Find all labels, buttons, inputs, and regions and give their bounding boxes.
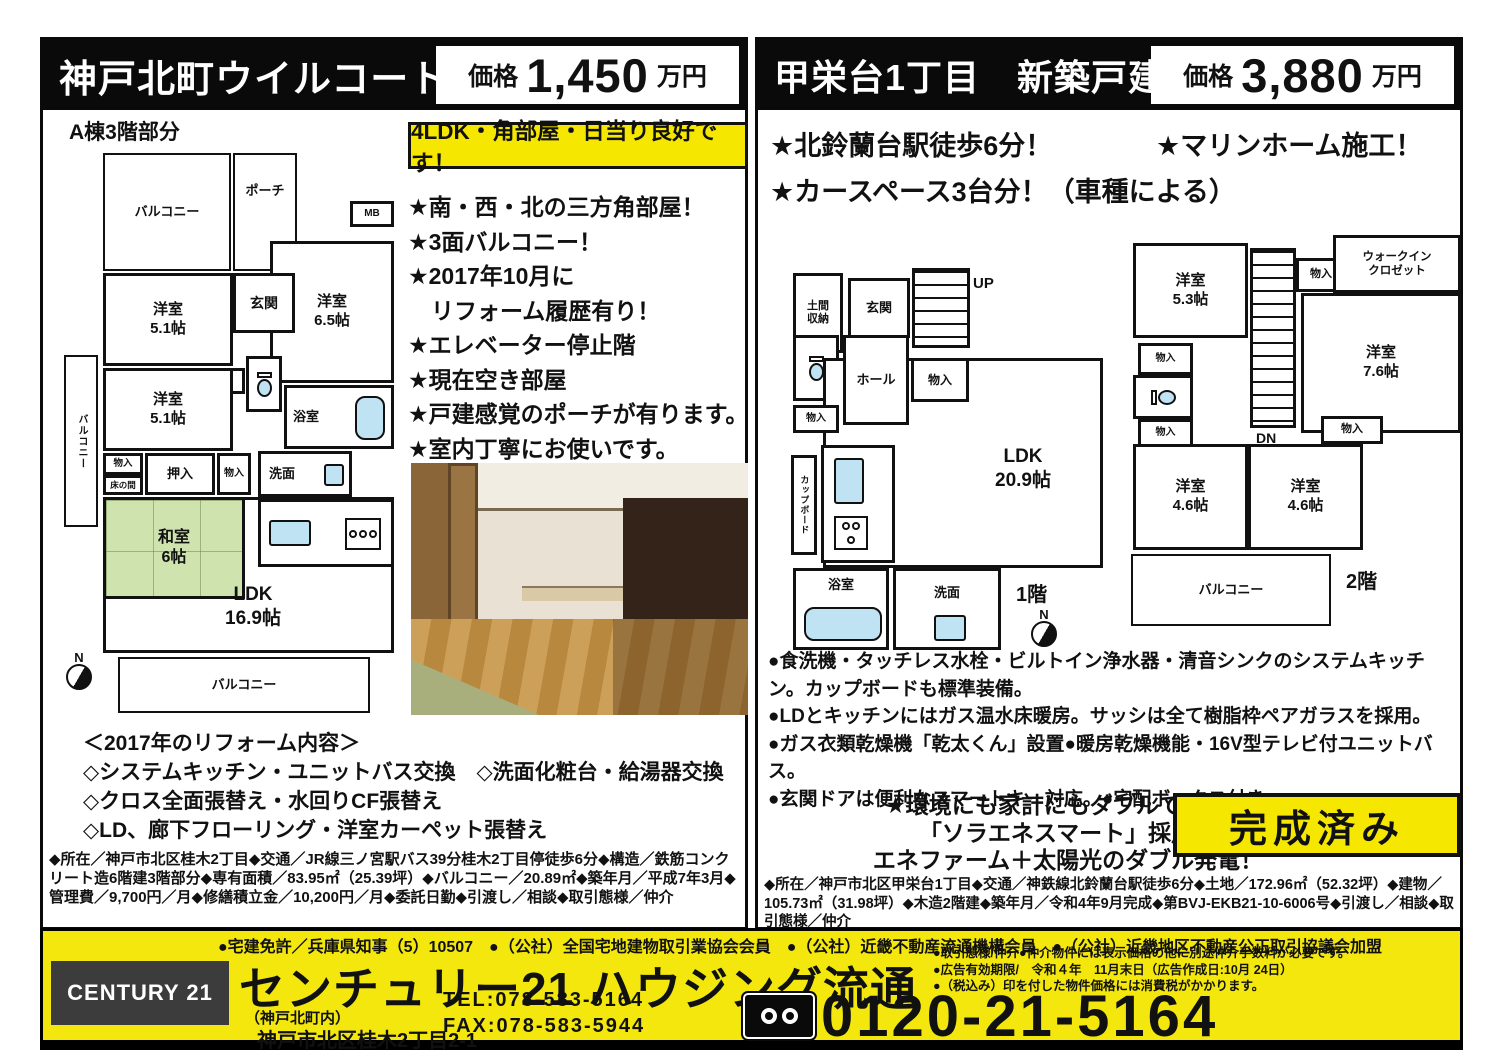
stairs-up-label: UP <box>973 275 994 292</box>
feature-line: ★3面バルコニー！ <box>408 225 748 260</box>
feature-line: ★南・西・北の三方角部屋！ <box>408 190 748 225</box>
room-label: 洗面 <box>934 585 960 601</box>
left-price-value: 1,450 <box>526 48 649 103</box>
left-price-box: 価格 1,450 万円 <box>436 46 739 104</box>
reform-line: ◇クロス全面張替え・水回りCF張替え <box>83 788 724 817</box>
room-label: 和室 6帖 <box>158 528 190 568</box>
room-label: 洋室 6.5帖 <box>314 293 350 331</box>
right-price-box: 価格 3,880 万円 <box>1151 46 1454 104</box>
tel-number: TEL:078-583-5164 <box>443 989 644 1012</box>
reform-line: ◇LD、廊下フローリング・洋室カーペット張替え <box>83 817 724 846</box>
left-floor-plan: バルコニー ポーチ MB 洋室 6.5帖 洋室 5.1帖 玄関 物入 洋室 <box>58 143 403 721</box>
compass-icon: N <box>1031 608 1057 647</box>
feature-line: ●LDとキッチンにはガス温水床暖房。サッシは全て樹脂枠ペアガラスを採用。 <box>768 703 1460 731</box>
footer-note-line: ●広告有効期限/ 令和４年 11月末日（広告作成日:10月 24日） <box>933 962 1350 979</box>
feature-line: ★室内丁寧にお使いです。 <box>408 432 748 467</box>
room-senmen: 洗面 <box>258 451 352 497</box>
room-closet1-1f: 物入 <box>911 358 969 402</box>
right-bullet-carspace: ★カースペース3台分！（車種による） <box>770 170 1236 209</box>
room-closet-c: 物入 <box>217 453 251 495</box>
room-genkan-1f: 玄関 <box>848 278 910 338</box>
feature-line: ★2017年10月に <box>408 259 748 294</box>
room-label: 玄関 <box>866 300 892 316</box>
right-price-unit: 万円 <box>1372 57 1422 93</box>
room-bath-1f: 浴室 <box>793 568 889 650</box>
feature-line: リフォーム履歴有り！ <box>408 294 748 329</box>
feature-line: ★エレベーター停止階 <box>408 328 748 363</box>
kitchen-sink-icon <box>834 458 864 504</box>
room-label: 洋室 5.1帖 <box>150 391 186 429</box>
footer-notes: ●取引態様/仲介●仲介物件には表示価格の他に別途仲介手数料が必要です。 ●広告有… <box>933 945 1350 995</box>
room-label: 玄関 <box>250 295 278 312</box>
room-label: 洋室 4.6帖 <box>1288 478 1324 516</box>
right-bullet-station: ★北鈴蘭台駅徒歩6分！ <box>770 124 1052 163</box>
interior-photo <box>411 463 748 715</box>
room-closet-l2-2f: 物入 <box>1138 419 1193 447</box>
room-bath: 浴室 <box>284 385 394 449</box>
room-closet2-1f: 物入 <box>793 405 839 433</box>
room-genkan: 玄関 <box>233 273 295 333</box>
footer-note-line: ●（税込み）印を付した物件価格には消費税がかかります。 <box>933 978 1350 995</box>
reform-title: ＜2017年のリフォーム内容＞ <box>83 730 724 759</box>
stove-icon <box>345 518 381 550</box>
room-label: バルコニー <box>75 414 87 469</box>
footer-bar: ●宅建免許／兵庫県知事（5）10507 ●（公社）全国宅地建物取引業協会会員 ●… <box>40 928 1463 1050</box>
room-oshiire: 押入 <box>145 453 215 495</box>
room-mb: MB <box>350 201 394 227</box>
sink-icon <box>324 464 344 486</box>
room-balcony-top: バルコニー <box>103 153 231 271</box>
room-closet-r-2f: 物入 <box>1321 416 1383 444</box>
stairs-down <box>1250 248 1296 428</box>
room-label: 洗面 <box>269 466 295 482</box>
right-header-bar: 甲栄台1丁目 新築戸建 価格 3,880 万円 <box>758 40 1460 110</box>
room-closet-b: 物入 <box>103 453 143 475</box>
room-label: カップボード <box>799 475 810 535</box>
floor-plan-1f: 土間収納 玄関 UP ホール 物入 物入 カップボード <box>773 230 1123 675</box>
room-label: 物入 <box>1156 427 1176 439</box>
room-yoshitsu-7-6: 洋室 7.6帖 <box>1301 293 1461 433</box>
right-price-label: 価格 <box>1183 57 1233 93</box>
bathtub-icon <box>804 607 882 641</box>
room-yoshitsu-5-1-upper: 洋室 5.1帖 <box>103 273 233 366</box>
room-kitchen <box>258 499 394 567</box>
toilet-icon <box>1151 390 1176 405</box>
feature-line: ★現在空き部屋 <box>408 363 748 398</box>
kitchen-sink-icon <box>269 520 311 546</box>
room-toilet <box>246 356 282 412</box>
left-plan-caption: A棟3階部分 <box>69 116 180 146</box>
room-yoshitsu-4-6-left: 洋室 4.6帖 <box>1133 444 1248 550</box>
room-label: 浴室 <box>828 577 854 593</box>
stairs-up <box>912 268 970 348</box>
left-price-label: 価格 <box>468 57 518 93</box>
left-feature-list: ★南・西・北の三方角部屋！ ★3面バルコニー！ ★2017年10月に リフォーム… <box>408 190 748 466</box>
room-yoshitsu-4-6-right: 洋室 4.6帖 <box>1248 444 1363 550</box>
floor-plan-2f: 洋室 5.3帖 物入 ウォークイン クロゼット 洋室 7.6帖 DN 物入 <box>1128 230 1466 675</box>
left-price-unit: 万円 <box>657 57 707 93</box>
room-label: ホール <box>856 372 895 388</box>
room-label: ウォークイン クロゼット <box>1363 250 1432 279</box>
right-feature-list: ●食洗機・タッチレス水栓・ビルトイン浄水器・清音シンクのシステムキッチン。カップ… <box>768 648 1460 813</box>
room-label: バルコニー <box>212 677 277 693</box>
bathtub-icon <box>355 396 385 440</box>
stove-icon <box>834 516 868 550</box>
left-header-bar: 神戸北町ウイルコート 価格 1,450 万円 <box>43 40 745 110</box>
left-property-details: ◆所在／神戸市北区桂木2丁目◆交通／JR線三ノ宮駅バス39分桂木2丁目停徒歩6分… <box>49 850 743 908</box>
room-balcony-left: バルコニー <box>64 355 98 527</box>
toilet-icon <box>257 372 272 397</box>
feature-line: ★戸建感覚のポーチが有ります。 <box>408 397 748 432</box>
room-label: 物入 <box>928 373 952 387</box>
photo-kitchen-cabinet <box>623 498 748 629</box>
completed-badge: 完成済み <box>1173 793 1461 857</box>
left-property-title: 神戸北町ウイルコート <box>59 40 448 110</box>
room-label: MB <box>364 208 380 220</box>
room-label: 洋室 5.1帖 <box>150 301 186 339</box>
photo-counter <box>522 586 623 601</box>
room-label: 洋室 7.6帖 <box>1363 344 1399 382</box>
footer-note-line: ●取引態様/仲介●仲介物件には表示価格の他に別途仲介手数料が必要です。 <box>933 945 1350 962</box>
room-label: 押入 <box>167 466 193 482</box>
room-wic: ウォークイン クロゼット <box>1333 235 1461 293</box>
room-label: 浴室 <box>293 409 319 425</box>
sink-icon <box>934 615 966 641</box>
room-balcony-bottom: バルコニー <box>118 657 370 713</box>
room-label: 土間収納 <box>805 300 831 326</box>
room-balcony-2f: バルコニー <box>1131 554 1331 626</box>
room-tokonoma: 床の間 <box>103 475 143 495</box>
room-label: 物入 <box>1156 353 1176 365</box>
room-cupboard: カップボード <box>791 455 817 555</box>
left-property-panel: 神戸北町ウイルコート 価格 1,450 万円 A棟3階部分 バルコニー ポーチ … <box>40 37 748 930</box>
room-label: 物入 <box>113 458 132 469</box>
freedial-phone-icon <box>743 993 815 1039</box>
room-label: 物入 <box>1341 423 1363 436</box>
room-label: 洋室 4.6帖 <box>1173 478 1209 516</box>
room-label: バルコニー <box>1199 582 1264 598</box>
room-hall: ホール <box>843 335 909 425</box>
flyer-page: 神戸北町ウイルコート 価格 1,450 万円 A棟3階部分 バルコニー ポーチ … <box>0 0 1500 1061</box>
floor-1f-label: 1階 <box>1016 578 1047 607</box>
floor-2f-label: 2階 <box>1346 565 1377 594</box>
room-senmen-1f: 洗面 <box>893 568 1001 650</box>
room-label: 物入 <box>806 413 826 425</box>
right-property-panel: 甲栄台1丁目 新築戸建 価格 3,880 万円 ★北鈴蘭台駅徒歩6分！ ★マリン… <box>755 37 1463 930</box>
right-property-title: 甲栄台1丁目 新築戸建 <box>774 40 1165 110</box>
ldk-1f-label: LDK 20.9帖 <box>963 445 1083 493</box>
room-toilet-2f <box>1133 375 1193 419</box>
photo-floor-shadow <box>613 619 748 715</box>
left-highlight-banner: 4LDK・角部屋・日当り良好です！ <box>408 122 748 169</box>
room-label: 床の間 <box>110 480 136 490</box>
room-closet-l1-2f: 物入 <box>1138 343 1193 375</box>
room-yoshitsu-5-3: 洋室 5.3帖 <box>1133 243 1248 338</box>
feature-line: ●食洗機・タッチレス水栓・ビルトイン浄水器・清音シンクのシステムキッチン。カップ… <box>768 648 1460 703</box>
right-bullet-builder: ★マリンホーム施工！ <box>1156 124 1422 163</box>
reform-line: ◇システムキッチン・ユニットバス交換 ◇洗面化粧台・給湯器交換 <box>83 759 724 788</box>
right-price-value: 3,880 <box>1241 48 1364 103</box>
room-label: 物入 <box>224 468 244 480</box>
room-label: 物入 <box>1310 268 1332 281</box>
feature-line: ●ガス衣類乾燥機「乾太くん」設置●暖房乾燥機能・16V型テレビ付ユニットバス。 <box>768 731 1460 786</box>
toilet-icon <box>809 356 824 381</box>
right-property-details: ◆所在／神戸市北区甲栄台1丁目◆交通／神鉄線北鈴蘭台駅徒歩6分◆土地／172.9… <box>764 876 1458 932</box>
fax-number: FAX:078-583-5944 <box>443 1015 645 1038</box>
century21-logo: CENTURY 21 <box>51 961 229 1025</box>
room-label: ポーチ <box>245 183 284 199</box>
room-kitchen-1f <box>821 445 895 563</box>
room-label: バルコニー <box>135 204 200 220</box>
reform-section: ＜2017年のリフォーム内容＞ ◇システムキッチン・ユニットバス交換 ◇洗面化粧… <box>83 730 724 846</box>
ldk-label: LDK 16.9帖 <box>178 583 328 631</box>
room-label: 洋室 5.3帖 <box>1173 272 1209 310</box>
room-yoshitsu-5-1-lower: 洋室 5.1帖 <box>103 368 233 451</box>
compass-icon: N <box>66 651 92 690</box>
